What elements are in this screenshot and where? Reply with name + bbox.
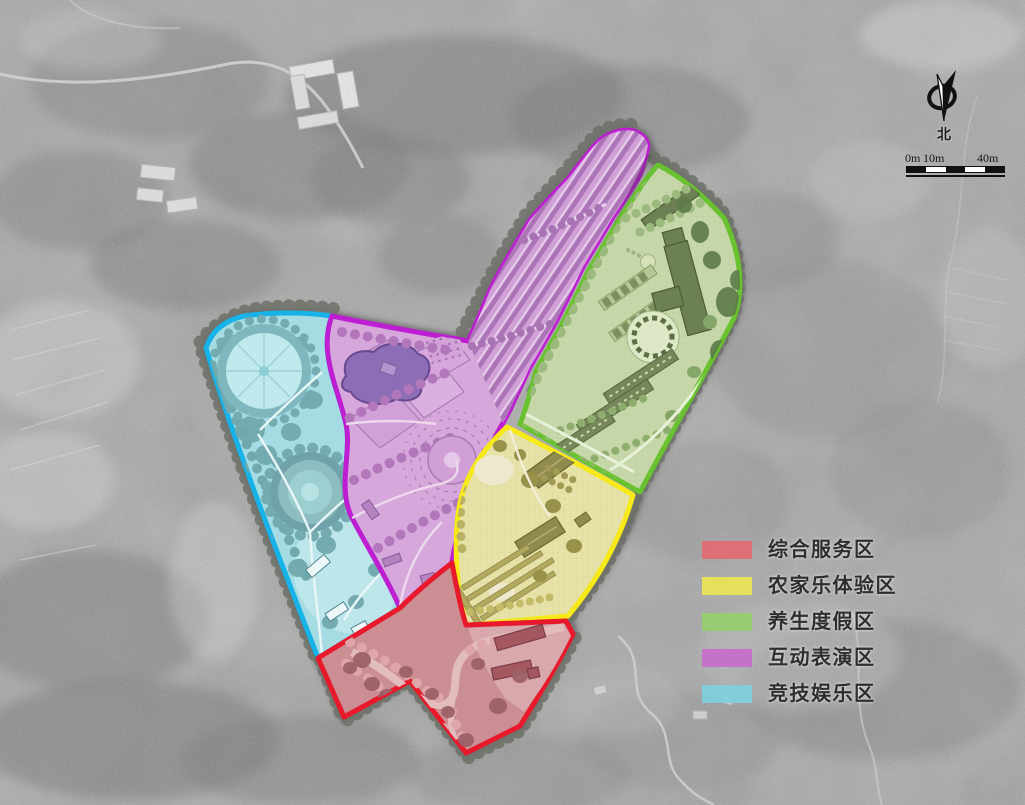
legend: 综合服务区 农家乐体验区 养生度假区 互动表演区 竞技娱乐区	[702, 541, 897, 721]
north-label: 北	[916, 124, 972, 144]
legend-item-farmhouse-experience: 农家乐体验区	[702, 577, 897, 595]
scale-tick-10: 10m	[923, 152, 944, 164]
legend-item-comprehensive-service: 综合服务区	[702, 541, 897, 559]
legend-label-competitive-entertainment: 竞技娱乐区	[768, 685, 876, 703]
legend-item-health-resort: 养生度假区	[702, 613, 897, 631]
legend-swatch-health-resort	[702, 613, 752, 631]
scale-tick-40: 40m	[977, 152, 998, 164]
scale-bar-blocks	[906, 166, 1005, 173]
scale-bar: 0m 10m 40m	[903, 152, 1009, 178]
scale-bar-baseline	[906, 175, 1005, 177]
legend-swatch-farmhouse-experience	[702, 577, 752, 595]
legend-label-comprehensive-service: 综合服务区	[768, 541, 876, 559]
scale-tick-0: 0m	[905, 152, 920, 164]
legend-item-interactive-performance: 互动表演区	[702, 649, 897, 667]
north-arrow-white-blade	[937, 74, 944, 121]
masterplan-screenshot: 北 0m 10m 40m 综合服务区 农家乐体验区 养生度假区 互动表演区 竞技…	[0, 0, 1025, 805]
legend-item-competitive-entertainment: 竞技娱乐区	[702, 685, 897, 703]
legend-swatch-comprehensive-service	[702, 541, 752, 559]
legend-label-farmhouse-experience: 农家乐体验区	[768, 577, 897, 595]
pond	[342, 344, 430, 404]
legend-label-interactive-performance: 互动表演区	[768, 649, 876, 667]
legend-label-health-resort: 养生度假区	[768, 613, 876, 631]
north-arrow	[916, 64, 972, 126]
legend-swatch-interactive-performance	[702, 649, 752, 667]
legend-swatch-competitive-entertainment	[702, 685, 752, 703]
